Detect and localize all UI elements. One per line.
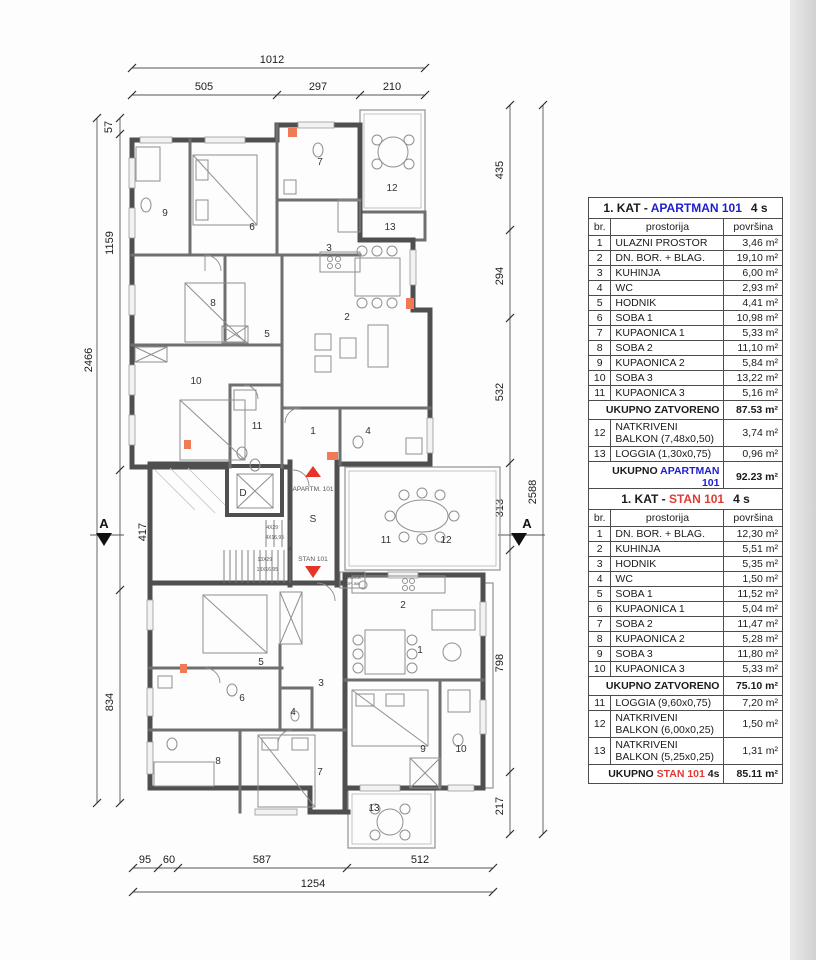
row-name: KUHINJA bbox=[611, 266, 724, 281]
row-br: 9 bbox=[589, 647, 611, 662]
upper-room-6: 6 bbox=[249, 222, 255, 233]
lower-room-1: 1 bbox=[417, 645, 423, 656]
table-row: 11LOGGIA (9,60x0,75)7,20 m² bbox=[589, 696, 783, 711]
row-br: 5 bbox=[589, 296, 611, 311]
section-arrow-right bbox=[511, 533, 527, 546]
table-row: 2KUHINJA5,51 m² bbox=[589, 542, 783, 557]
table-row: 7SOBA 211,47 m² bbox=[589, 617, 783, 632]
total-name: APARTMAN 101 bbox=[660, 465, 719, 489]
upper-room-13: 13 bbox=[384, 222, 396, 233]
elevator-label: D bbox=[239, 488, 246, 499]
row-area: 5,84 m² bbox=[724, 356, 783, 371]
lower-room-5: 5 bbox=[258, 657, 264, 668]
stan-101-table: 1. KAT - STAN 1014 s br. prostorija povr… bbox=[588, 488, 783, 784]
table-row: 5SOBA 111,52 m² bbox=[589, 587, 783, 602]
total-name: STAN 101 bbox=[657, 768, 705, 780]
dim-left-total: 2466 bbox=[83, 348, 95, 372]
scan-edge-band bbox=[790, 0, 816, 960]
row-area: 1,50 m² bbox=[724, 711, 783, 738]
row-br: 13 bbox=[589, 738, 611, 765]
table-row: 5HODNIK4,41 m² bbox=[589, 296, 783, 311]
row-name: LOGGIA (9,60x0,75) bbox=[611, 696, 724, 711]
row-name: KUPAONICA 3 bbox=[611, 662, 724, 677]
stairs-up-treads: 4X29 bbox=[266, 525, 278, 531]
row-area: 5,35 m² bbox=[724, 557, 783, 572]
table-title-prefix: 1. KAT - bbox=[603, 201, 650, 215]
row-name: KUPAONICA 2 bbox=[611, 356, 724, 371]
row-area: 5,33 m² bbox=[724, 326, 783, 341]
row-br: 12 bbox=[589, 711, 611, 738]
row-area: 1,50 m² bbox=[724, 572, 783, 587]
table-title-prefix: 1. KAT - bbox=[621, 492, 669, 506]
row-br: 4 bbox=[589, 572, 611, 587]
table-header-row: br. prostorija površina bbox=[589, 219, 783, 236]
dim-bottom-2: 587 bbox=[253, 854, 271, 866]
lower-room-4: 4 bbox=[290, 707, 296, 718]
total-value: 85.11 m² bbox=[724, 765, 783, 784]
floor-plan-drawing: 1012 505 297 210 2466 57 1159 417 834 25… bbox=[0, 0, 586, 960]
table-row: 2DN. BOR. + BLAG.19,10 m² bbox=[589, 251, 783, 266]
dim-left-0: 57 bbox=[103, 121, 115, 133]
dim-bottom-3: 512 bbox=[411, 854, 429, 866]
table-row: 10KUPAONICA 35,33 m² bbox=[589, 662, 783, 677]
lower-room-8: 8 bbox=[215, 756, 221, 767]
row-name: SOBA 2 bbox=[611, 617, 724, 632]
row-area: 3,74 m² bbox=[724, 420, 783, 447]
dim-left-1: 1159 bbox=[104, 231, 116, 255]
dim-top-total: 1012 bbox=[260, 54, 284, 66]
room-numbers-mid: 11 12 bbox=[381, 535, 452, 546]
row-area: 5,04 m² bbox=[724, 602, 783, 617]
row-name: DN. BOR. + BLAG. bbox=[611, 251, 724, 266]
subtotal-label: UKUPNO ZATVORENO bbox=[589, 677, 724, 696]
lower-room-6: 6 bbox=[239, 693, 245, 704]
row-br: 7 bbox=[589, 326, 611, 341]
apartman-entrance-label: APARTM. 101 bbox=[293, 486, 334, 493]
upper-room-4: 4 bbox=[365, 426, 371, 437]
stair-hall-label: S bbox=[310, 514, 317, 525]
row-area: 3,46 m² bbox=[724, 236, 783, 251]
table-row: 3HODNIK5,35 m² bbox=[589, 557, 783, 572]
row-br: 8 bbox=[589, 341, 611, 356]
table-title-name: APARTMAN 101 bbox=[651, 201, 742, 215]
row-area: 13,22 m² bbox=[724, 371, 783, 386]
lower-room-13: 13 bbox=[368, 803, 380, 814]
upper-room-8: 8 bbox=[210, 298, 216, 309]
row-name: NATKRIVENI BALKON (6,00x0,25) bbox=[611, 711, 724, 738]
table-row: 13LOGGIA (1,30x0,75)0,96 m² bbox=[589, 447, 783, 462]
table-row: 11KUPAONICA 35,16 m² bbox=[589, 386, 783, 401]
table-row: 1ULAZNI PROSTOR3,46 m² bbox=[589, 236, 783, 251]
mid-room-12: 12 bbox=[440, 535, 452, 546]
row-name: KUHINJA bbox=[611, 542, 724, 557]
section-arrow-left bbox=[96, 533, 112, 546]
walls bbox=[132, 125, 483, 812]
row-br: 6 bbox=[589, 311, 611, 326]
row-area: 7,20 m² bbox=[724, 696, 783, 711]
table-row: 8KUPAONICA 25,28 m² bbox=[589, 632, 783, 647]
row-name: ULAZNI PROSTOR bbox=[611, 236, 724, 251]
upper-room-7: 7 bbox=[317, 157, 323, 168]
row-name: KUPAONICA 1 bbox=[611, 602, 724, 617]
col-area: površina bbox=[724, 510, 783, 527]
table-row: 12NATKRIVENI BALKON (7,48x0,50)3,74 m² bbox=[589, 420, 783, 447]
row-name: SOBA 3 bbox=[611, 371, 724, 386]
row-area: 10,98 m² bbox=[724, 311, 783, 326]
table-row: 6SOBA 110,98 m² bbox=[589, 311, 783, 326]
row-br: 12 bbox=[589, 420, 611, 447]
total-suffix: 4s bbox=[708, 768, 720, 780]
row-name: HODNIK bbox=[611, 296, 724, 311]
table-row: 1DN. BOR. + BLAG.12,30 m² bbox=[589, 527, 783, 542]
row-br: 10 bbox=[589, 662, 611, 677]
table-row: 9SOBA 311,80 m² bbox=[589, 647, 783, 662]
row-area: 4,41 m² bbox=[724, 296, 783, 311]
row-area: 19,10 m² bbox=[724, 251, 783, 266]
row-area: 11,10 m² bbox=[724, 341, 783, 356]
subtotal-row: UKUPNO ZATVORENO 87.53 m² bbox=[589, 401, 783, 420]
stairs-down-risers: 13X16,95 bbox=[257, 567, 279, 573]
dim-right-0: 435 bbox=[494, 161, 506, 179]
col-room: prostorija bbox=[611, 219, 724, 236]
dim-left-2: 417 bbox=[137, 523, 149, 541]
lower-room-2: 2 bbox=[400, 600, 406, 611]
row-br: 1 bbox=[589, 527, 611, 542]
balconies bbox=[345, 110, 500, 848]
col-br: br. bbox=[589, 219, 611, 236]
row-br: 7 bbox=[589, 617, 611, 632]
row-name: NATKRIVENI BALKON (7,48x0,50) bbox=[611, 420, 724, 447]
row-name: SOBA 2 bbox=[611, 341, 724, 356]
table-row: 4WC2,93 m² bbox=[589, 281, 783, 296]
dim-bottom-0: 95 bbox=[139, 854, 151, 866]
row-name: WC bbox=[611, 572, 724, 587]
room-numbers-lower: 1 2 3 4 5 6 7 8 9 10 13 bbox=[215, 600, 467, 814]
row-br: 4 bbox=[589, 281, 611, 296]
dim-top-2: 297 bbox=[309, 81, 327, 93]
table-row: 10SOBA 313,22 m² bbox=[589, 371, 783, 386]
row-area: 11,80 m² bbox=[724, 647, 783, 662]
row-area: 2,93 m² bbox=[724, 281, 783, 296]
row-name: SOBA 1 bbox=[611, 587, 724, 602]
row-name: LOGGIA (1,30x0,75) bbox=[611, 447, 724, 462]
dim-right-4: 798 bbox=[494, 654, 506, 672]
upper-room-12: 12 bbox=[386, 183, 398, 194]
table-title-name: STAN 101 bbox=[669, 492, 724, 506]
row-name: KUPAONICA 1 bbox=[611, 326, 724, 341]
upper-room-5: 5 bbox=[264, 329, 270, 340]
row-area: 5,28 m² bbox=[724, 632, 783, 647]
upper-room-10: 10 bbox=[190, 376, 202, 387]
row-br: 3 bbox=[589, 266, 611, 281]
subtotal-row: UKUPNO ZATVORENO 75.10 m² bbox=[589, 677, 783, 696]
row-br: 2 bbox=[589, 251, 611, 266]
dim-right-1: 294 bbox=[494, 267, 506, 285]
row-area: 5,33 m² bbox=[724, 662, 783, 677]
row-name: WC bbox=[611, 281, 724, 296]
entrance-arrow-up bbox=[305, 466, 321, 477]
row-br: 6 bbox=[589, 602, 611, 617]
lower-room-7: 7 bbox=[317, 767, 323, 778]
lower-room-3: 3 bbox=[318, 678, 324, 689]
section-markers: A A bbox=[90, 516, 545, 546]
table-title-suffix: 4 s bbox=[751, 201, 768, 215]
doors bbox=[205, 0, 586, 744]
upper-room-11: 11 bbox=[252, 421, 263, 432]
table-row: 4WC1,50 m² bbox=[589, 572, 783, 587]
dim-top-3: 210 bbox=[383, 81, 401, 93]
table-header-row: br. prostorija površina bbox=[589, 510, 783, 527]
table-row: 9KUPAONICA 25,84 m² bbox=[589, 356, 783, 371]
table-title-row: 1. KAT - STAN 1014 s bbox=[589, 489, 783, 510]
row-area: 11,52 m² bbox=[724, 587, 783, 602]
dim-bottom-1: 60 bbox=[163, 854, 175, 866]
stan-entrance-label: STAN 101 bbox=[298, 556, 328, 563]
middle-terrace bbox=[345, 467, 500, 570]
table-title-row: 1. KAT - APARTMAN 1014 s bbox=[589, 198, 783, 219]
row-area: 12,30 m² bbox=[724, 527, 783, 542]
subtotal-label: UKUPNO ZATVORENO bbox=[589, 401, 724, 420]
upper-room-3: 3 bbox=[326, 243, 332, 254]
upper-room-1: 1 bbox=[310, 426, 316, 437]
subtotal-value: 87.53 m² bbox=[724, 401, 783, 420]
apartman-101-table: 1. KAT - APARTMAN 1014 s br. prostorija … bbox=[588, 197, 783, 493]
table-row: 8SOBA 211,10 m² bbox=[589, 341, 783, 356]
row-br: 11 bbox=[589, 386, 611, 401]
row-br: 3 bbox=[589, 557, 611, 572]
col-br: br. bbox=[589, 510, 611, 527]
table-title-suffix: 4 s bbox=[733, 492, 750, 506]
row-name: SOBA 3 bbox=[611, 647, 724, 662]
col-room: prostorija bbox=[611, 510, 724, 527]
mid-room-11: 11 bbox=[381, 535, 392, 546]
row-area: 6,00 m² bbox=[724, 266, 783, 281]
row-area: 0,96 m² bbox=[724, 447, 783, 462]
floor-plan-page: 1012 505 297 210 2466 57 1159 417 834 25… bbox=[0, 0, 816, 960]
table-row: 3KUHINJA6,00 m² bbox=[589, 266, 783, 281]
lower-room-10: 10 bbox=[455, 744, 467, 755]
row-br: 8 bbox=[589, 632, 611, 647]
col-area: površina bbox=[724, 219, 783, 236]
row-br: 10 bbox=[589, 371, 611, 386]
table-row: 7KUPAONICA 15,33 m² bbox=[589, 326, 783, 341]
upper-room-2: 2 bbox=[344, 312, 350, 323]
upper-balcony-12 bbox=[360, 110, 425, 212]
total-row: UKUPNO STAN 101 4s 85.11 m² bbox=[589, 765, 783, 784]
table-row: 6KUPAONICA 15,04 m² bbox=[589, 602, 783, 617]
dim-right-2: 532 bbox=[494, 383, 506, 401]
row-br: 2 bbox=[589, 542, 611, 557]
row-name: KUPAONICA 2 bbox=[611, 632, 724, 647]
row-name: HODNIK bbox=[611, 557, 724, 572]
dim-left-3: 834 bbox=[104, 693, 116, 711]
row-name: DN. BOR. + BLAG. bbox=[611, 527, 724, 542]
row-area: 1,31 m² bbox=[724, 738, 783, 765]
row-area: 5,51 m² bbox=[724, 542, 783, 557]
table-row: 12NATKRIVENI BALKON (6,00x0,25)1,50 m² bbox=[589, 711, 783, 738]
row-br: 13 bbox=[589, 447, 611, 462]
lower-room-9: 9 bbox=[420, 744, 426, 755]
row-name: KUPAONICA 3 bbox=[611, 386, 724, 401]
total-prefix: UKUPNO bbox=[612, 465, 660, 477]
subtotal-value: 75.10 m² bbox=[724, 677, 783, 696]
stairs-up-risers: 4X16,95 bbox=[265, 535, 284, 541]
dim-top-1: 505 bbox=[195, 81, 213, 93]
row-area: 5,16 m² bbox=[724, 386, 783, 401]
row-name: NATKRIVENI BALKON (5,25x0,25) bbox=[611, 738, 724, 765]
row-name: SOBA 1 bbox=[611, 311, 724, 326]
row-br: 1 bbox=[589, 236, 611, 251]
section-label-left: A bbox=[99, 516, 109, 531]
dim-right-5: 217 bbox=[494, 797, 506, 815]
table-row: 13NATKRIVENI BALKON (5,25x0,25)1,31 m² bbox=[589, 738, 783, 765]
entrance-arrow-down bbox=[305, 566, 321, 578]
upper-room-9: 9 bbox=[162, 208, 168, 219]
row-br: 11 bbox=[589, 696, 611, 711]
row-br: 5 bbox=[589, 587, 611, 602]
total-prefix: UKUPNO bbox=[608, 768, 656, 780]
row-br: 9 bbox=[589, 356, 611, 371]
row-area: 11,47 m² bbox=[724, 617, 783, 632]
dim-bottom-total: 1254 bbox=[301, 878, 325, 890]
stairs-down-treads: 13X29 bbox=[258, 557, 273, 563]
lower-balcony-13 bbox=[348, 790, 435, 848]
section-label-right: A bbox=[522, 516, 532, 531]
dim-right-total: 2588 bbox=[527, 480, 539, 504]
